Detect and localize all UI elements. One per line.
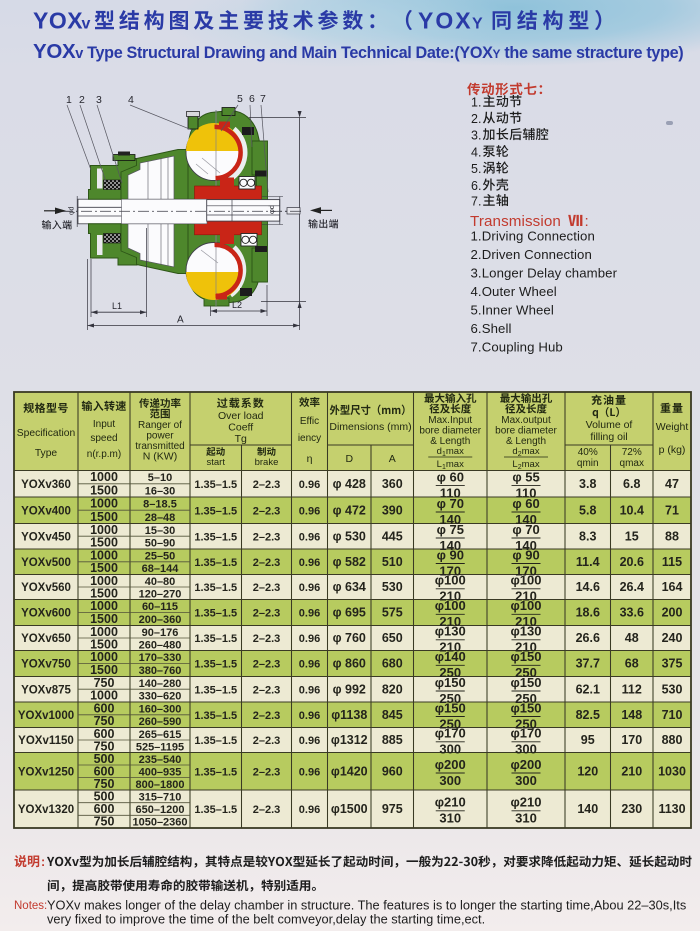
svg-text:5.Inner Wheel: 5.Inner Wheel xyxy=(471,303,554,318)
svg-text:885: 885 xyxy=(382,733,403,747)
svg-text:φ150: φ150 xyxy=(511,675,542,690)
svg-text:2–2.3: 2–2.3 xyxy=(253,479,281,491)
svg-text:2–2.3: 2–2.3 xyxy=(253,710,281,722)
svg-text:33.6: 33.6 xyxy=(620,606,644,620)
svg-text:265–615: 265–615 xyxy=(139,729,182,741)
svg-text:speed: speed xyxy=(90,433,117,444)
svg-text:8–18.5: 8–18.5 xyxy=(143,499,177,511)
svg-text:0.96: 0.96 xyxy=(299,804,320,816)
svg-text:2: 2 xyxy=(79,94,85,106)
svg-text:5–10: 5–10 xyxy=(148,472,172,484)
svg-text:650: 650 xyxy=(382,631,403,645)
svg-text:48: 48 xyxy=(625,631,639,645)
svg-text:8.3: 8.3 xyxy=(579,529,596,543)
svg-text:445: 445 xyxy=(382,529,403,543)
svg-text:170: 170 xyxy=(621,733,642,747)
svg-text:235–540: 235–540 xyxy=(139,754,182,766)
svg-text:0.96: 0.96 xyxy=(299,582,320,594)
svg-text:φ 70: φ 70 xyxy=(512,522,539,537)
svg-text:975: 975 xyxy=(382,802,403,816)
svg-text:start: start xyxy=(207,457,226,468)
svg-text:2–2.3: 2–2.3 xyxy=(253,766,281,778)
svg-text:brake: brake xyxy=(255,457,279,468)
svg-text:YOXv Type Structural Drawing a: YOXv Type Structural Drawing and Main Te… xyxy=(33,40,683,63)
svg-text:90–176: 90–176 xyxy=(142,627,179,639)
svg-text:φ 90: φ 90 xyxy=(437,547,464,562)
svg-text:2–2.3: 2–2.3 xyxy=(253,582,281,594)
svg-text:0.96: 0.96 xyxy=(299,684,320,696)
svg-text:Effic: Effic xyxy=(300,416,319,427)
svg-text:1.35–1.5: 1.35–1.5 xyxy=(194,531,237,543)
svg-text:4.Outer Wheel: 4.Outer Wheel xyxy=(471,284,557,299)
svg-text:YOX: YOX xyxy=(418,8,473,34)
svg-text:845: 845 xyxy=(382,708,403,722)
svg-text:7.Coupling Hub: 7.Coupling Hub xyxy=(471,340,563,355)
svg-text:2–2.3: 2–2.3 xyxy=(253,557,281,569)
svg-text:310: 310 xyxy=(439,811,461,826)
svg-text:3.: 3. xyxy=(471,129,481,143)
svg-text:A: A xyxy=(389,453,396,465)
svg-text:φ 55: φ 55 xyxy=(512,469,539,484)
svg-text:φ200: φ200 xyxy=(435,757,466,772)
svg-text:φd: φd xyxy=(69,206,76,215)
svg-text:880: 880 xyxy=(662,733,683,747)
svg-text:φ210: φ210 xyxy=(435,795,466,810)
svg-text:530: 530 xyxy=(382,580,403,594)
svg-text:1000: 1000 xyxy=(90,650,118,664)
svg-text:Type: Type xyxy=(35,448,58,459)
svg-text:160–300: 160–300 xyxy=(139,703,182,715)
svg-text:very fixed to improve the time: very fixed to improve the time of the be… xyxy=(47,912,485,927)
svg-text:28–48: 28–48 xyxy=(145,512,176,524)
svg-text:0.96: 0.96 xyxy=(299,766,320,778)
svg-text:310: 310 xyxy=(515,811,537,826)
svg-text:5.: 5. xyxy=(471,162,481,176)
svg-text:φ 60: φ 60 xyxy=(437,469,464,484)
svg-text:φ130: φ130 xyxy=(511,624,542,639)
svg-text:φ 75: φ 75 xyxy=(437,522,464,537)
svg-text:88: 88 xyxy=(665,529,679,543)
svg-text:2–2.3: 2–2.3 xyxy=(253,735,281,747)
svg-text:5: 5 xyxy=(237,93,243,105)
svg-text:50–90: 50–90 xyxy=(145,538,176,550)
svg-text:φ 428: φ 428 xyxy=(333,477,366,491)
svg-text:1.35–1.5: 1.35–1.5 xyxy=(194,479,237,491)
svg-text:φ170: φ170 xyxy=(435,726,466,741)
svg-text:680: 680 xyxy=(382,657,403,671)
svg-text:φ 530: φ 530 xyxy=(333,529,366,543)
svg-text:260–480: 260–480 xyxy=(139,639,182,651)
svg-text:3.Longer Delay chamber: 3.Longer Delay chamber xyxy=(471,266,618,281)
svg-text:Ranger of: Ranger of xyxy=(138,420,182,431)
svg-text:N (KW): N (KW) xyxy=(143,451,177,463)
svg-text:575: 575 xyxy=(382,606,403,620)
svg-text:0.96: 0.96 xyxy=(299,710,320,722)
svg-text:2–2.3: 2–2.3 xyxy=(253,608,281,620)
svg-text:148: 148 xyxy=(621,708,642,722)
svg-text:filling oil: filling oil xyxy=(590,431,627,443)
svg-text:6.Shell: 6.Shell xyxy=(471,321,512,336)
svg-text:d2max: d2max xyxy=(512,446,539,458)
svg-text:15: 15 xyxy=(625,529,639,543)
svg-text:YOXv560: YOXv560 xyxy=(21,582,71,594)
svg-text:7.: 7. xyxy=(471,195,481,209)
svg-text:φ 70: φ 70 xyxy=(437,496,464,511)
svg-text:φ 634: φ 634 xyxy=(333,580,366,594)
svg-text:15–30: 15–30 xyxy=(145,525,176,537)
svg-text:φ 582: φ 582 xyxy=(333,555,366,569)
svg-text:1000: 1000 xyxy=(90,497,118,511)
svg-text:68–144: 68–144 xyxy=(142,563,180,575)
svg-text:η: η xyxy=(307,453,313,465)
svg-text:4: 4 xyxy=(128,94,134,106)
svg-text:1030: 1030 xyxy=(658,764,686,778)
svg-text:d1max: d1max xyxy=(437,446,464,458)
svg-text:L2: L2 xyxy=(232,300,242,310)
svg-text:800–1800: 800–1800 xyxy=(136,779,185,791)
svg-text:φ150: φ150 xyxy=(511,700,542,715)
svg-text:1.: 1. xyxy=(471,96,481,110)
svg-text:0.96: 0.96 xyxy=(299,735,320,747)
svg-text:YOXv750: YOXv750 xyxy=(21,659,71,671)
svg-text:YOXv875: YOXv875 xyxy=(21,684,71,696)
svg-text:330–620: 330–620 xyxy=(139,691,182,703)
svg-text:Max.Input: Max.Input xyxy=(428,415,472,426)
svg-text:11.4: 11.4 xyxy=(576,555,600,569)
svg-text:1.35–1.5: 1.35–1.5 xyxy=(194,608,237,620)
svg-text:25–50: 25–50 xyxy=(145,550,176,562)
svg-text:2.: 2. xyxy=(471,112,481,126)
svg-text:0.96: 0.96 xyxy=(299,531,320,543)
svg-text:φ 992: φ 992 xyxy=(333,682,366,696)
svg-text:YOXv400: YOXv400 xyxy=(21,505,71,517)
svg-text:φ 60: φ 60 xyxy=(512,496,539,511)
svg-text:60–115: 60–115 xyxy=(142,601,178,613)
svg-text:0.96: 0.96 xyxy=(299,608,320,620)
svg-text:300: 300 xyxy=(515,773,537,788)
svg-text:1.35–1.5: 1.35–1.5 xyxy=(194,735,237,747)
svg-text:650–1200: 650–1200 xyxy=(136,804,185,816)
svg-text:6.: 6. xyxy=(471,179,481,193)
svg-text:120–270: 120–270 xyxy=(139,588,182,600)
svg-text:71: 71 xyxy=(665,503,679,517)
svg-text:YOXv600: YOXv600 xyxy=(21,608,71,620)
svg-text:0.96: 0.96 xyxy=(299,557,320,569)
svg-text:360: 360 xyxy=(382,477,403,491)
svg-text:φ130: φ130 xyxy=(435,624,466,639)
svg-text:YOXv makes longer of the delay: YOXv makes longer of the delay chamber i… xyxy=(47,898,686,913)
svg-text:2–2.3: 2–2.3 xyxy=(253,531,281,543)
svg-text:power: power xyxy=(146,431,174,442)
svg-text:φ150: φ150 xyxy=(435,700,466,715)
svg-text:φ210: φ210 xyxy=(511,795,542,810)
svg-text:φ200: φ200 xyxy=(511,757,542,772)
svg-text:390: 390 xyxy=(382,503,403,517)
svg-text:6.8: 6.8 xyxy=(623,477,640,491)
svg-text:1.35–1.5: 1.35–1.5 xyxy=(194,633,237,645)
svg-text:3: 3 xyxy=(96,94,102,106)
svg-text:Notes:: Notes: xyxy=(14,900,47,912)
svg-text:820: 820 xyxy=(382,682,403,696)
svg-text:φ 90: φ 90 xyxy=(512,547,539,562)
svg-text:62.1: 62.1 xyxy=(576,682,600,696)
svg-text:A: A xyxy=(177,315,184,326)
svg-text:φ1138: φ1138 xyxy=(331,708,367,722)
svg-text:525–1195: 525–1195 xyxy=(136,741,184,753)
svg-text:200: 200 xyxy=(662,606,683,620)
svg-text:φ100: φ100 xyxy=(435,598,466,613)
svg-text:140: 140 xyxy=(577,802,598,816)
svg-text:1: 1 xyxy=(66,94,72,106)
svg-text:750: 750 xyxy=(94,815,115,829)
svg-text:1500: 1500 xyxy=(90,510,118,524)
svg-text:380–760: 380–760 xyxy=(139,665,182,677)
svg-text:YOX: YOX xyxy=(33,8,83,34)
svg-text:φ1312: φ1312 xyxy=(331,733,368,747)
svg-text:1.35–1.5: 1.35–1.5 xyxy=(194,684,237,696)
svg-text:φ140: φ140 xyxy=(435,649,466,664)
svg-text:φ150: φ150 xyxy=(435,675,466,690)
svg-text:0.96: 0.96 xyxy=(299,505,320,517)
svg-text:120: 120 xyxy=(577,764,598,778)
svg-text:0.96: 0.96 xyxy=(299,633,320,645)
svg-text:710: 710 xyxy=(662,708,683,722)
svg-text:510: 510 xyxy=(382,555,403,569)
svg-text:530: 530 xyxy=(662,682,683,696)
svg-text:Tg: Tg xyxy=(235,433,247,445)
svg-text:1.35–1.5: 1.35–1.5 xyxy=(194,582,237,594)
svg-text:YOXv1250: YOXv1250 xyxy=(18,766,74,778)
svg-text:Transmission: Transmission xyxy=(470,213,561,230)
svg-text:68: 68 xyxy=(625,657,639,671)
svg-text:Dimensions (mm): Dimensions (mm) xyxy=(329,421,411,433)
svg-text:n(r.p.m): n(r.p.m) xyxy=(87,449,121,460)
svg-text:Max.output: Max.output xyxy=(501,415,551,426)
svg-text:1.35–1.5: 1.35–1.5 xyxy=(194,766,237,778)
svg-text:Coeff: Coeff xyxy=(228,422,253,434)
svg-text:Volume of: Volume of xyxy=(586,419,633,431)
svg-text:YOXv650: YOXv650 xyxy=(21,633,71,645)
svg-text:φ150: φ150 xyxy=(511,649,542,664)
svg-text:170–330: 170–330 xyxy=(139,652,182,664)
svg-text:iency: iency xyxy=(298,433,321,444)
svg-text:φ 695: φ 695 xyxy=(333,606,366,620)
svg-text:200–360: 200–360 xyxy=(139,614,182,626)
svg-text:375: 375 xyxy=(662,657,683,671)
svg-text:p (kg): p (kg) xyxy=(659,444,686,456)
svg-text:D: D xyxy=(345,453,353,465)
svg-text:40–80: 40–80 xyxy=(145,576,176,588)
svg-text:YOXv500: YOXv500 xyxy=(21,557,71,569)
svg-text:v: v xyxy=(82,16,91,33)
svg-text:300: 300 xyxy=(515,742,537,757)
svg-text:7: 7 xyxy=(260,93,266,105)
svg-text:18.6: 18.6 xyxy=(576,606,600,620)
svg-text:16–30: 16–30 xyxy=(145,485,176,497)
svg-text:φ1500: φ1500 xyxy=(331,802,368,816)
svg-text:YOXv450: YOXv450 xyxy=(21,531,71,543)
svg-text:300: 300 xyxy=(439,773,461,788)
svg-text:Input: Input xyxy=(93,419,115,430)
svg-text:YOXv1000: YOXv1000 xyxy=(18,710,74,722)
svg-text:2–2.3: 2–2.3 xyxy=(253,633,281,645)
svg-text:φ170: φ170 xyxy=(511,726,542,741)
svg-text:Specification: Specification xyxy=(17,428,76,439)
svg-text:2.Driven Connection: 2.Driven Connection xyxy=(471,247,592,262)
svg-text:1.35–1.5: 1.35–1.5 xyxy=(194,659,237,671)
svg-text:φ1420: φ1420 xyxy=(331,764,368,778)
svg-text:315–710: 315–710 xyxy=(139,791,182,803)
svg-text:2–2.3: 2–2.3 xyxy=(253,684,281,696)
svg-text:400–935: 400–935 xyxy=(139,766,182,778)
svg-text:26.6: 26.6 xyxy=(576,631,600,645)
svg-text:240: 240 xyxy=(662,631,683,645)
svg-text:40%: 40% xyxy=(578,447,598,458)
svg-text:qmax: qmax xyxy=(620,458,644,469)
svg-text:YOXv1150: YOXv1150 xyxy=(18,735,74,747)
svg-text:2–2.3: 2–2.3 xyxy=(253,659,281,671)
svg-text:φd: φd xyxy=(267,205,276,214)
svg-text:1050–2360: 1050–2360 xyxy=(132,817,187,829)
svg-text:1000: 1000 xyxy=(90,470,118,484)
svg-text:260–590: 260–590 xyxy=(139,716,182,728)
svg-text:1500: 1500 xyxy=(90,483,118,497)
svg-text:3.8: 3.8 xyxy=(579,477,596,491)
svg-text:Y: Y xyxy=(472,16,483,33)
svg-text:26.4: 26.4 xyxy=(620,580,644,594)
svg-text:6: 6 xyxy=(249,93,255,105)
svg-text:72%: 72% xyxy=(622,447,642,458)
svg-text:φ100: φ100 xyxy=(435,573,466,588)
svg-text:10.4: 10.4 xyxy=(620,503,644,517)
svg-text:1.35–1.5: 1.35–1.5 xyxy=(194,804,237,816)
svg-text:YOXv1320: YOXv1320 xyxy=(18,804,74,816)
svg-text:0.96: 0.96 xyxy=(299,479,320,491)
svg-text:300: 300 xyxy=(439,742,461,757)
svg-text:14.6: 14.6 xyxy=(576,580,600,594)
svg-text:φ 760: φ 760 xyxy=(333,631,366,645)
svg-text:1.35–1.5: 1.35–1.5 xyxy=(194,557,237,569)
svg-text:95: 95 xyxy=(581,733,595,747)
svg-text:115: 115 xyxy=(662,555,682,569)
svg-text:Weight: Weight xyxy=(656,421,689,433)
svg-text:1.35–1.5: 1.35–1.5 xyxy=(194,505,237,517)
svg-text:bore diameter: bore diameter xyxy=(495,426,557,437)
svg-text:2–2.3: 2–2.3 xyxy=(253,505,281,517)
svg-text::: : xyxy=(41,855,45,869)
svg-text:112: 112 xyxy=(622,682,642,696)
svg-text:20.6: 20.6 xyxy=(620,555,644,569)
svg-text:1000: 1000 xyxy=(90,599,118,613)
svg-text:φ100: φ100 xyxy=(511,598,542,613)
svg-text::: : xyxy=(585,213,589,230)
svg-text:1130: 1130 xyxy=(658,802,685,816)
svg-text:1.35–1.5: 1.35–1.5 xyxy=(194,710,237,722)
svg-text:φ 860: φ 860 xyxy=(333,657,366,671)
svg-text:1.Driving Connection: 1.Driving Connection xyxy=(471,229,595,244)
svg-text:2–2.3: 2–2.3 xyxy=(253,804,281,816)
svg-text:L1: L1 xyxy=(112,301,122,311)
svg-text:Over load: Over load xyxy=(218,410,264,422)
svg-text:φ100: φ100 xyxy=(511,573,542,588)
svg-text:qmin: qmin xyxy=(577,458,599,469)
svg-text:37.7: 37.7 xyxy=(576,657,600,671)
svg-text:210: 210 xyxy=(621,764,642,778)
svg-text:φ 472: φ 472 xyxy=(333,503,366,517)
svg-text:bore diameter: bore diameter xyxy=(419,426,481,437)
svg-text:4.: 4. xyxy=(471,146,481,160)
svg-text:82.5: 82.5 xyxy=(576,708,600,722)
svg-text:960: 960 xyxy=(382,764,403,778)
svg-text:140–280: 140–280 xyxy=(139,678,182,690)
svg-text:YOXv360: YOXv360 xyxy=(21,479,71,491)
svg-text:0.96: 0.96 xyxy=(299,659,320,671)
svg-text:164: 164 xyxy=(662,580,683,594)
svg-text:230: 230 xyxy=(621,802,642,816)
svg-text:5.8: 5.8 xyxy=(579,503,596,517)
svg-text:47: 47 xyxy=(665,477,679,491)
